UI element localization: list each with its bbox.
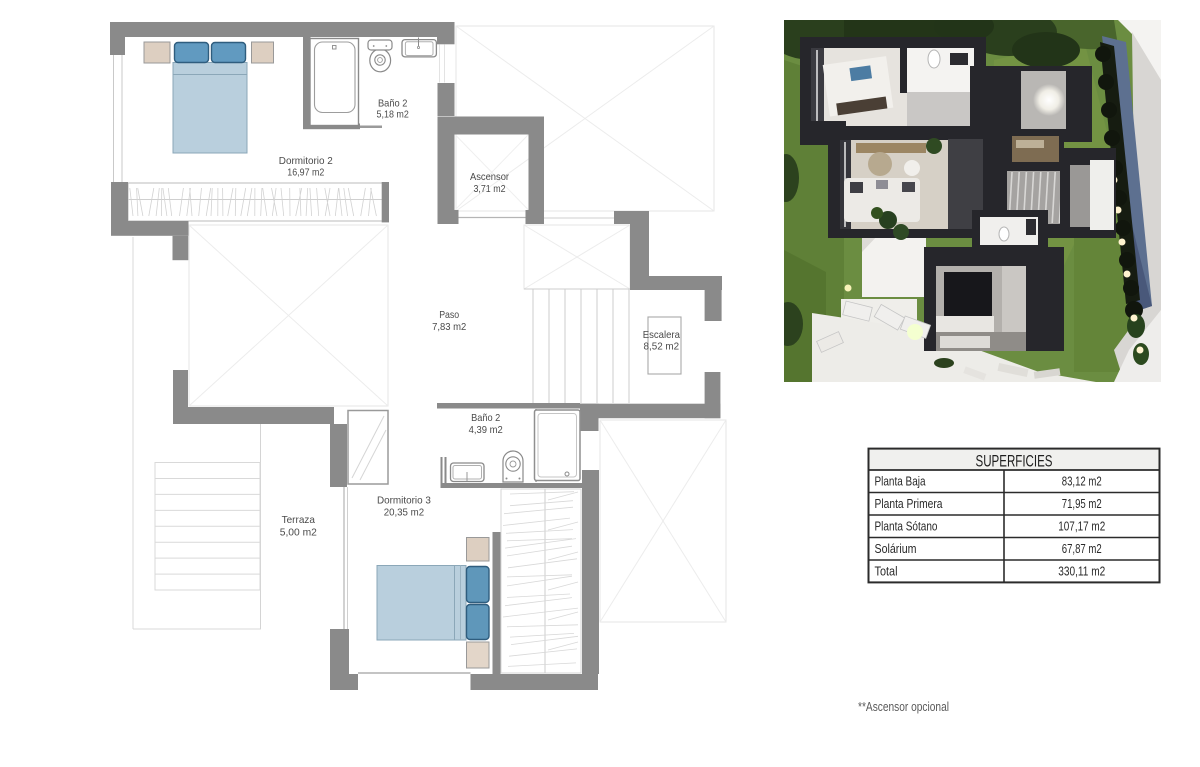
svg-text:Ascensor: Ascensor [470, 171, 510, 183]
svg-text:5,18 m2: 5,18 m2 [377, 109, 409, 121]
svg-text:3,71 m2: 3,71 m2 [473, 183, 505, 195]
svg-text:83,12 m2: 83,12 m2 [1062, 475, 1102, 489]
svg-text:16,97 m2: 16,97 m2 [287, 167, 324, 179]
svg-text:Terraza: Terraza [282, 514, 315, 526]
svg-text:4,39 m2: 4,39 m2 [469, 424, 503, 436]
svg-text:Baño 2: Baño 2 [471, 412, 500, 424]
svg-text:20,35 m2: 20,35 m2 [384, 506, 425, 518]
svg-text:Paso: Paso [439, 309, 459, 321]
svg-text:**Ascensor opcional: **Ascensor opcional [858, 699, 949, 714]
svg-text:Total: Total [875, 565, 898, 579]
svg-text:SUPERFICIES: SUPERFICIES [976, 452, 1053, 471]
svg-text:Dormitorio 2: Dormitorio 2 [279, 155, 333, 167]
svg-text:71,95 m2: 71,95 m2 [1062, 497, 1102, 511]
svg-text:7,83 m2: 7,83 m2 [432, 321, 466, 333]
svg-text:Escalera: Escalera [643, 329, 680, 341]
svg-text:Solárium: Solárium [875, 542, 917, 556]
svg-text:Planta Baja: Planta Baja [875, 475, 926, 489]
svg-text:Baño 2: Baño 2 [378, 97, 408, 109]
svg-text:8,52 m2: 8,52 m2 [644, 341, 680, 353]
svg-text:Dormitorio 3: Dormitorio 3 [377, 494, 431, 506]
svg-text:107,17 m2: 107,17 m2 [1058, 520, 1105, 534]
svg-text:Planta Primera: Planta Primera [875, 497, 943, 511]
svg-text:67,87 m2: 67,87 m2 [1062, 542, 1102, 556]
svg-text:Planta Sótano: Planta Sótano [875, 520, 938, 534]
svg-text:330,11 m2: 330,11 m2 [1058, 565, 1105, 579]
svg-text:5,00 m2: 5,00 m2 [280, 527, 317, 539]
